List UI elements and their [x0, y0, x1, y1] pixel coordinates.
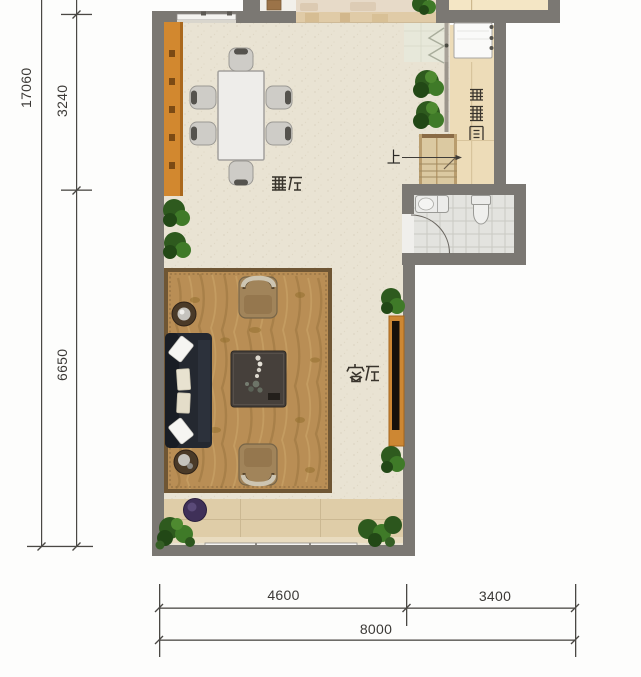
- svg-text:3400: 3400: [479, 588, 511, 604]
- svg-text:6650: 6650: [54, 349, 70, 381]
- svg-text:8000: 8000: [360, 621, 392, 637]
- svg-text:3240: 3240: [54, 85, 70, 117]
- svg-text:4600: 4600: [267, 587, 299, 603]
- svg-text:17060: 17060: [18, 68, 34, 108]
